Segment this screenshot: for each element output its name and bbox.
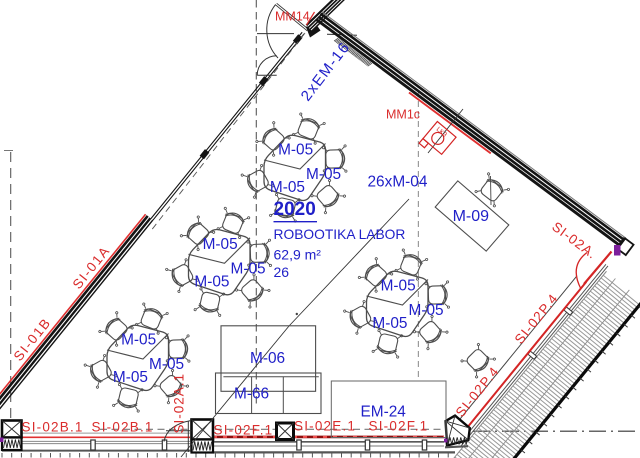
svg-text:M-05: M-05 [381, 278, 416, 295]
svg-text:MM1c: MM1c [386, 108, 420, 122]
svg-text:M-05: M-05 [121, 332, 156, 349]
svg-text:2020: 2020 [274, 199, 316, 220]
svg-text:62,9 m²: 62,9 m² [274, 247, 322, 263]
svg-text:M-05: M-05 [231, 261, 266, 278]
svg-text:M-05: M-05 [278, 142, 313, 159]
svg-text:SI-02B.1: SI-02B.1 [22, 420, 84, 435]
svg-text:SI-02F.1: SI-02F.1 [214, 422, 274, 437]
svg-text:SI-02F.1: SI-02F.1 [369, 419, 429, 434]
svg-text:MM14: MM14 [275, 10, 310, 24]
svg-text:M-06: M-06 [250, 350, 285, 367]
svg-text:26: 26 [274, 264, 290, 280]
svg-text:M-05: M-05 [113, 369, 148, 386]
svg-text:M-05: M-05 [194, 274, 229, 291]
svg-text:M-05: M-05 [409, 302, 444, 319]
svg-text:SI-02A.1: SI-02A.1 [172, 373, 187, 434]
svg-text:M-09: M-09 [453, 208, 490, 225]
svg-text:M-66: M-66 [234, 386, 269, 403]
svg-text:M-05: M-05 [270, 179, 305, 196]
svg-text:SI-02E.1: SI-02E.1 [294, 419, 356, 434]
svg-text:M-05: M-05 [306, 166, 341, 183]
svg-text:M-05: M-05 [372, 315, 407, 332]
svg-text:SI-02B.1: SI-02B.1 [92, 420, 154, 435]
svg-text:26xM-04: 26xM-04 [368, 174, 428, 191]
svg-text:M-05: M-05 [149, 356, 184, 373]
svg-text:ROBOOTIKA LABOR: ROBOOTIKA LABOR [274, 227, 406, 242]
svg-text:M-05: M-05 [203, 236, 238, 253]
